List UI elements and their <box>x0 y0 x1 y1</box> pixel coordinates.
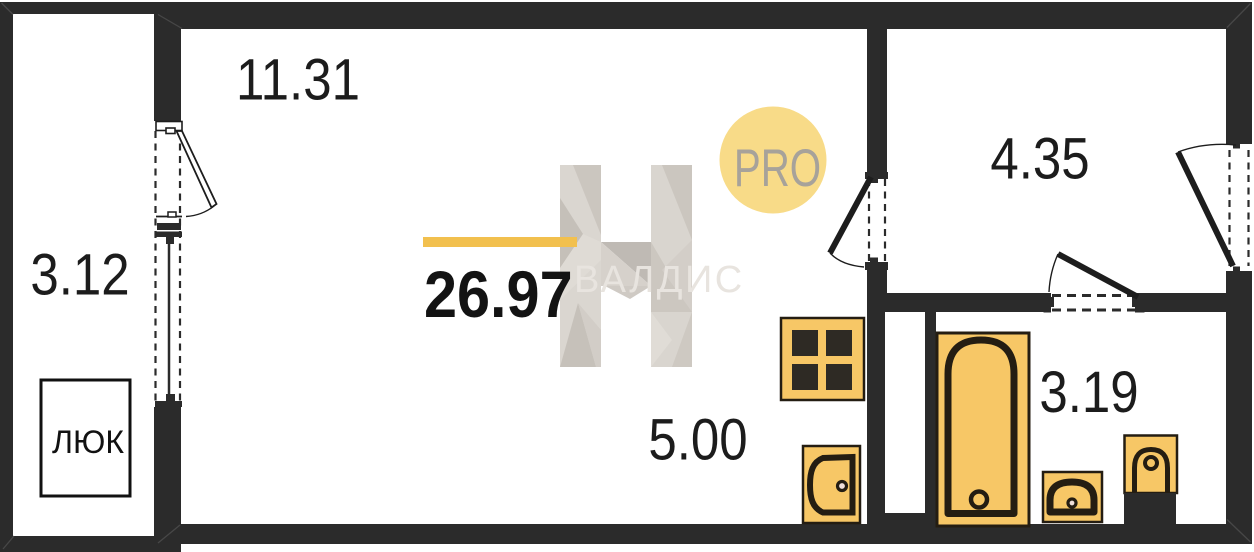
svg-text:3.12: 3.12 <box>30 242 129 307</box>
svg-text:ВАЛДИС: ВАЛДИС <box>574 259 745 301</box>
svg-text:11.31: 11.31 <box>236 47 360 112</box>
svg-text:3.19: 3.19 <box>1039 360 1138 425</box>
svg-text:26.97: 26.97 <box>424 258 573 332</box>
svg-text:PRO: PRO <box>734 138 821 198</box>
svg-text:5.00: 5.00 <box>648 407 747 472</box>
svg-text:ЛЮК: ЛЮК <box>52 424 124 460</box>
svg-text:4.35: 4.35 <box>990 126 1089 191</box>
